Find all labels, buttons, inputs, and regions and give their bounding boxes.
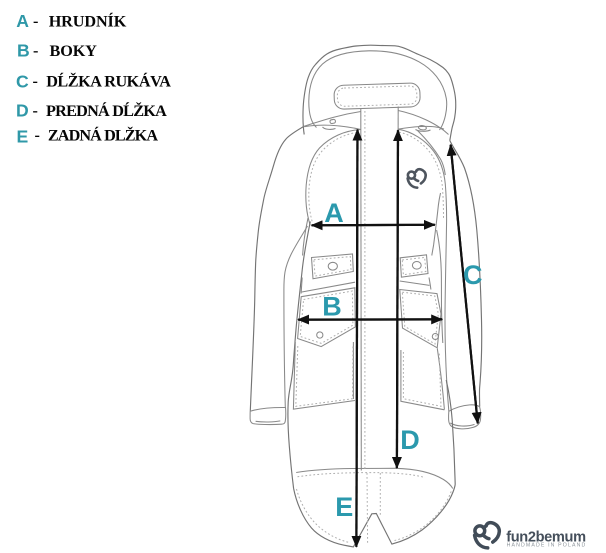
svg-text:B: B — [322, 292, 342, 322]
svg-text:HRUDNÍK: HRUDNÍK — [49, 12, 127, 31]
svg-text:A: A — [324, 198, 344, 228]
svg-text:DĹŽKA RUKÁVA: DĹŽKA RUKÁVA — [46, 71, 171, 90]
svg-text:BOKY: BOKY — [50, 42, 98, 60]
svg-text:E: E — [335, 492, 353, 522]
svg-text:-: - — [33, 72, 38, 90]
svg-text:D: D — [16, 101, 29, 121]
svg-text:D: D — [400, 425, 420, 455]
svg-text:-: - — [33, 102, 38, 120]
svg-text:C: C — [463, 260, 483, 290]
svg-text:HANDMADE IN POLAND: HANDMADE IN POLAND — [507, 543, 587, 549]
svg-text:PREDNÁ DĹŽKA: PREDNÁ DĹŽKA — [46, 101, 167, 120]
svg-text:C: C — [16, 72, 29, 92]
svg-text:-: - — [33, 12, 38, 30]
svg-text:E: E — [17, 126, 29, 146]
svg-text:-: - — [33, 41, 38, 59]
svg-text:A: A — [16, 11, 29, 31]
svg-text:ZADNÁ DLŽKA: ZADNÁ DLŽKA — [48, 126, 158, 145]
svg-text:-: - — [35, 126, 40, 144]
svg-text:B: B — [17, 40, 30, 60]
